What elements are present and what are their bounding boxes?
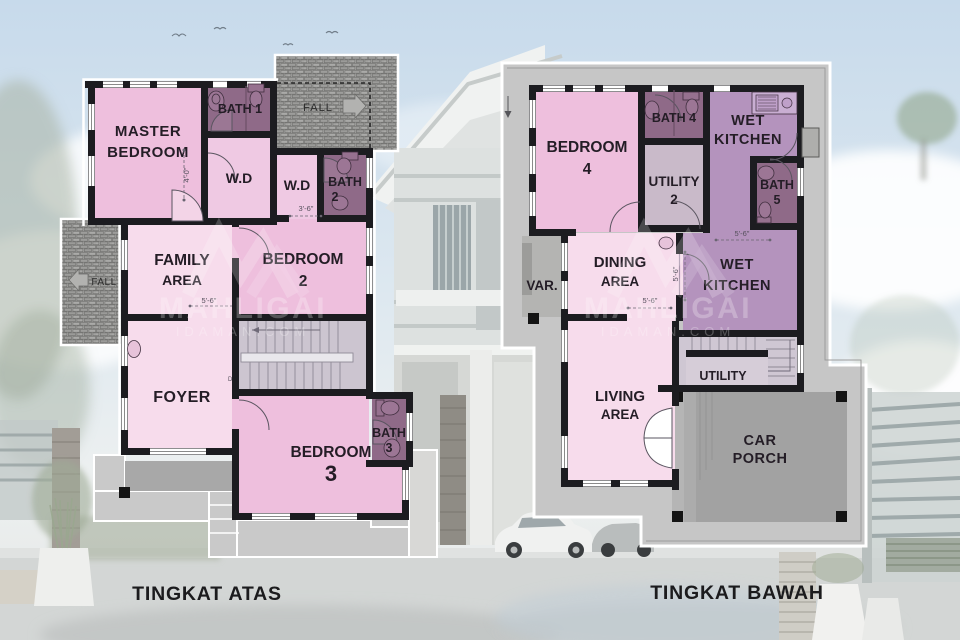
svg-text:LIVING: LIVING [595,388,645,405]
svg-text:KITCHEN: KITCHEN [714,132,782,148]
svg-text:3'-6": 3'-6" [299,204,314,213]
svg-text:AREA: AREA [601,407,640,422]
svg-text:MAHLIGAI: MAHLIGAI [159,292,327,325]
svg-text:PORCH: PORCH [733,451,788,467]
svg-text:BATH: BATH [328,175,362,189]
svg-text:FALL: FALL [303,102,333,114]
svg-text:FOYER: FOYER [153,389,211,406]
svg-text:UTILITY: UTILITY [649,174,700,189]
svg-text:3: 3 [325,461,337,486]
svg-text:MAHLIGAI: MAHLIGAI [584,292,752,325]
svg-text:IDAMAN.COM: IDAMAN.COM [601,324,736,339]
svg-text:2: 2 [670,192,678,207]
svg-text:VAR.: VAR. [526,278,557,293]
svg-text:TINGKAT BAWAH: TINGKAT BAWAH [650,582,824,604]
svg-text:CAR: CAR [744,433,777,449]
svg-text:W.D: W.D [226,170,252,186]
svg-text:IDAMAN.COM: IDAMAN.COM [176,324,311,339]
svg-text:WET: WET [720,257,754,273]
svg-text:3: 3 [386,441,393,455]
svg-text:BEDROOM: BEDROOM [291,444,372,461]
svg-text:BEDROOM: BEDROOM [547,139,628,156]
svg-text:BATH 1: BATH 1 [218,102,262,116]
svg-text:4: 4 [583,161,592,178]
svg-text:TINGKAT ATAS: TINGKAT ATAS [132,583,282,605]
svg-text:WET: WET [731,113,765,129]
svg-text:5: 5 [774,193,781,207]
svg-text:5'-6": 5'-6" [735,229,750,238]
svg-text:BATH: BATH [760,178,794,192]
svg-text:2: 2 [332,190,339,204]
svg-text:W.D: W.D [284,177,310,193]
svg-text:BEDROOM: BEDROOM [107,144,189,161]
svg-text:4'-0": 4'-0" [182,167,191,182]
svg-text:BATH 4: BATH 4 [652,111,696,125]
svg-text:FALL: FALL [91,277,116,288]
svg-text:UTILITY: UTILITY [699,369,747,383]
svg-text:MASTER: MASTER [115,123,181,140]
svg-text:BATH: BATH [372,426,406,440]
